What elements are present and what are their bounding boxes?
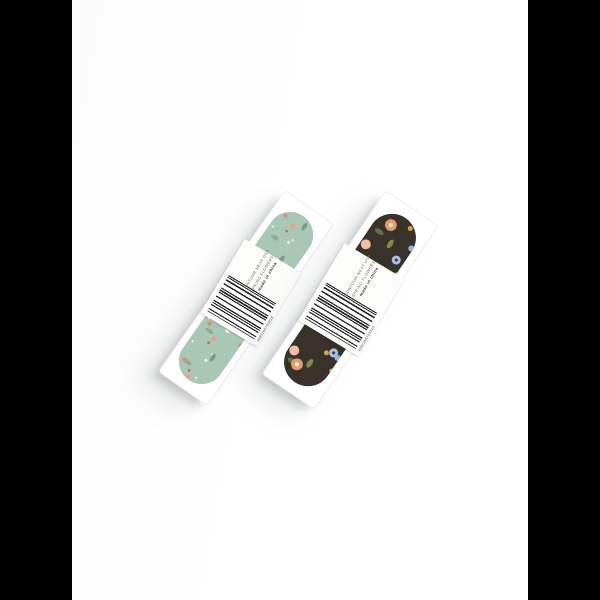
photo-stage: CONTOUR NEXT USB SPRING FLOWERS made in … <box>0 0 600 600</box>
product-photo-area: CONTOUR NEXT USB SPRING FLOWERS made in … <box>72 0 528 600</box>
